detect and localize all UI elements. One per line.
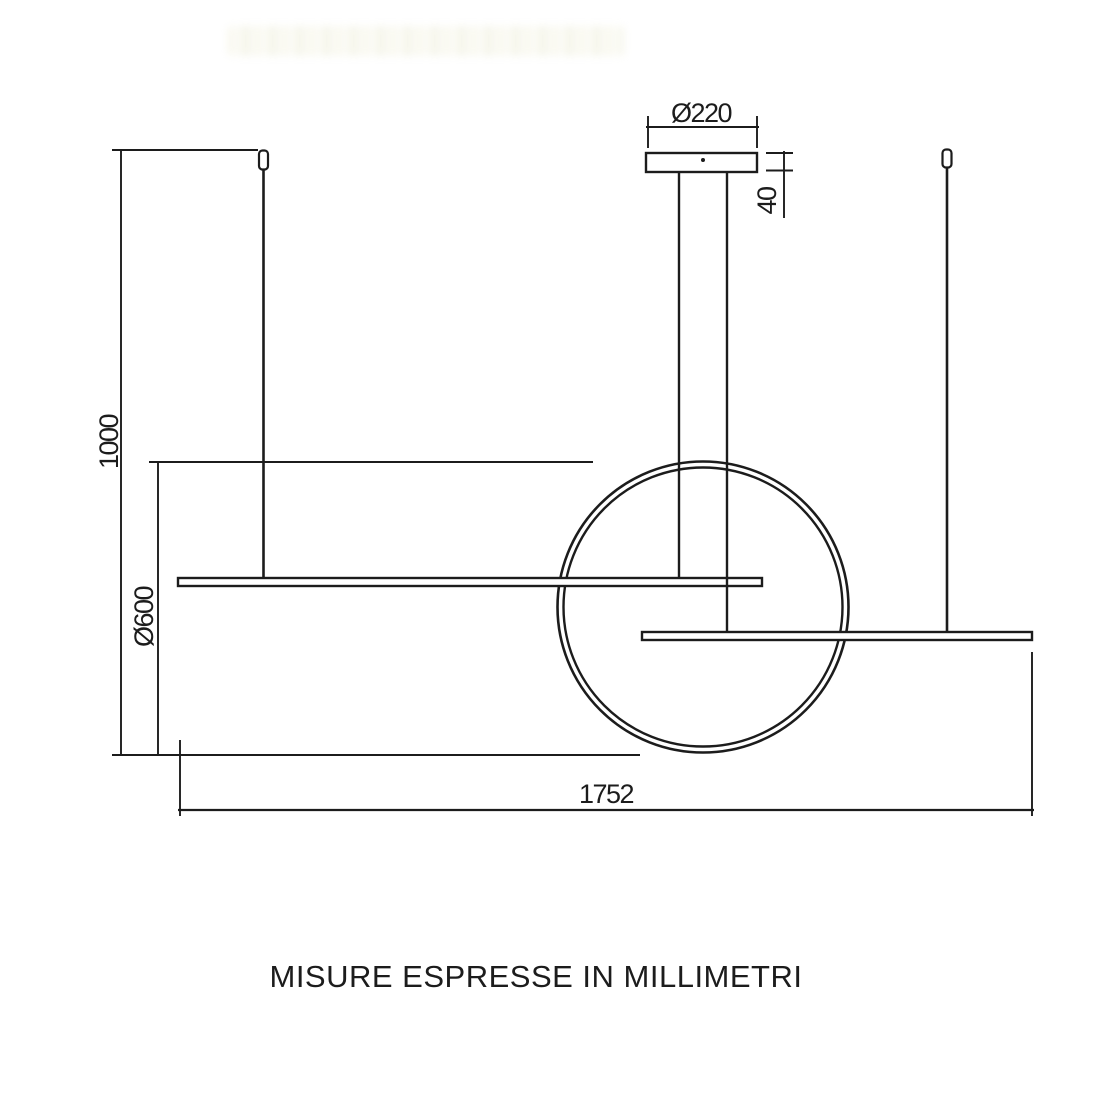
led-ring-outer-circle (558, 462, 849, 753)
suspension-right-cap (943, 150, 952, 168)
suspension-right (943, 150, 952, 633)
light-bar-lower (642, 632, 1032, 640)
diagram-page: Ø220 40 1000 Ø600 1752 (0, 0, 1100, 1100)
dimension-canopy-diameter: Ø220 (646, 98, 759, 148)
dimension-suspension-drop: 1000 (94, 150, 258, 755)
light-bar-upper (178, 578, 762, 586)
canopy-center-dot (701, 158, 705, 162)
suspension-drop-label: 1000 (94, 414, 124, 469)
suspension-left (259, 151, 268, 579)
watermark-smudge (228, 26, 624, 56)
total-width-label: 1752 (579, 779, 634, 809)
technical-drawing: Ø220 40 1000 Ø600 1752 (0, 0, 1100, 1100)
units-caption: MISURE ESPRESSE IN MILLIMETRI (270, 959, 803, 994)
canopy-diameter-label: Ø220 (671, 98, 732, 128)
ceiling-canopy (646, 153, 757, 172)
led-ring (558, 462, 849, 753)
ring-diameter-label: Ø600 (129, 586, 159, 647)
canopy-height-label: 40 (752, 187, 782, 215)
dimension-total-width: 1752 (178, 652, 1034, 816)
suspension-left-cap (259, 151, 268, 170)
canopy-body (646, 153, 757, 172)
led-ring-inner-circle (564, 468, 843, 747)
dimension-ring-diameter: Ø600 (112, 462, 640, 755)
